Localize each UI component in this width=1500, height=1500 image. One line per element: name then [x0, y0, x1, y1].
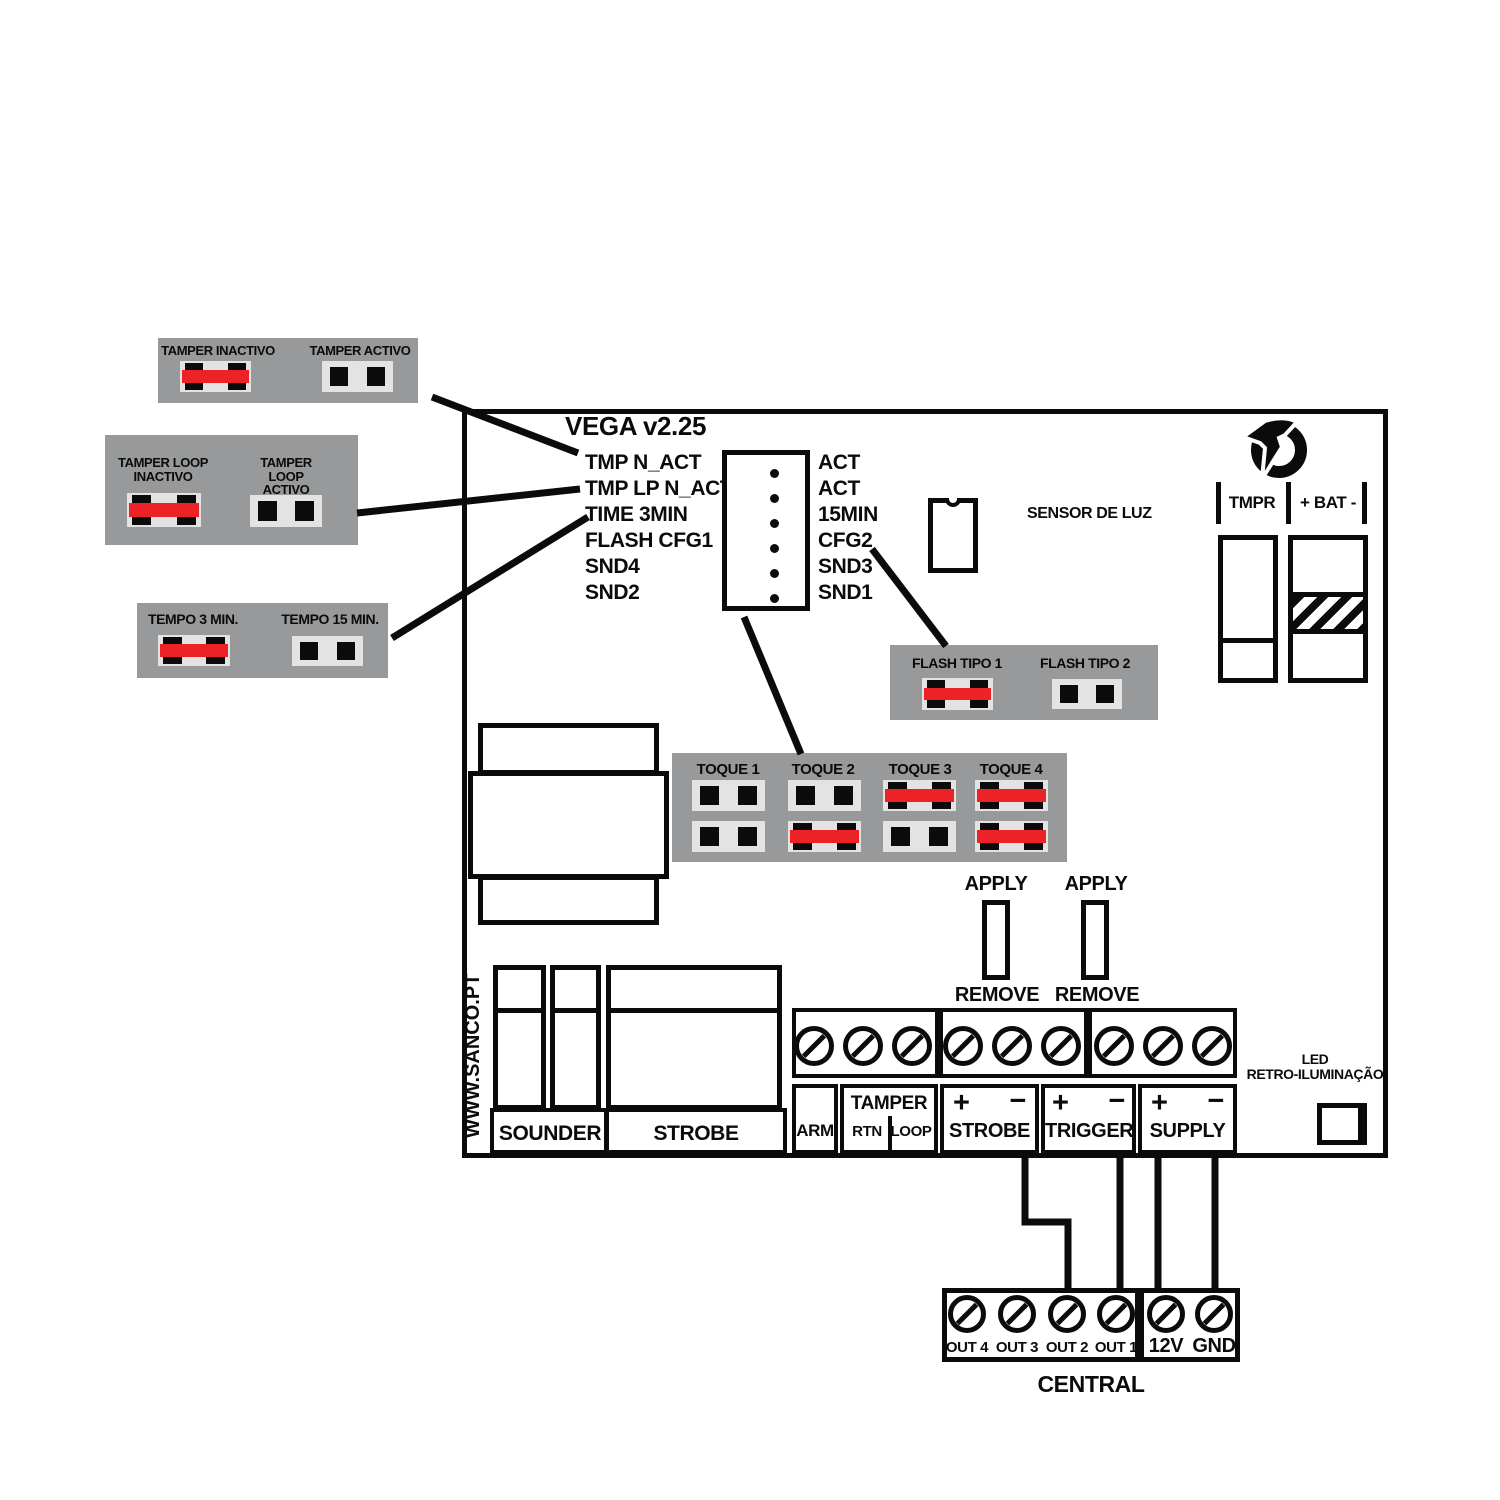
jumper-pin — [300, 642, 318, 661]
supply-minus: − — [1207, 1086, 1224, 1116]
wire-strobe-minus-out2 — [1025, 1156, 1068, 1292]
light-sensor — [928, 498, 978, 573]
tmpr-connector — [1218, 535, 1278, 683]
tamper-loop-inactive-label: TAMPER LOOP INACTIVO — [118, 456, 208, 483]
transformer-core — [468, 771, 669, 879]
jumper-cap — [924, 688, 991, 701]
terminal-label-arm: ARM — [792, 1084, 838, 1154]
jumper-pin — [796, 786, 815, 805]
cap-divider — [611, 1008, 777, 1013]
apply-label-strobe: APPLY — [965, 874, 1028, 895]
transformer-bottom — [478, 875, 659, 925]
jumper-pin — [700, 786, 719, 805]
brand-logo — [1235, 412, 1317, 482]
out1-label: OUT 1 — [1095, 1340, 1137, 1356]
trigger-plus: + — [1052, 1088, 1069, 1118]
cap-divider — [555, 1008, 596, 1013]
tempo-15min-label: TEMPO 15 MIN. — [281, 612, 378, 627]
callout-tempo: TEMPO 3 MIN. TEMPO 15 MIN. — [137, 603, 388, 678]
screw-out4 — [948, 1295, 986, 1333]
hdr-left-label-2: TIME 3MIN — [585, 504, 688, 526]
led-component — [1317, 1103, 1367, 1145]
out4-label: OUT 4 — [946, 1340, 988, 1356]
hdr-right-label-1: ACT — [818, 478, 860, 500]
sounder-label: SOUNDER — [499, 1123, 601, 1145]
tamper-active-label: TAMPER ACTIVO — [310, 344, 411, 358]
gnd-label: GND — [1192, 1336, 1235, 1357]
screw-arm — [794, 1026, 834, 1066]
screw-trigger-plus — [1041, 1026, 1081, 1066]
jumper-toque1-row2 — [692, 821, 765, 852]
bat-hatch-band — [1293, 592, 1363, 634]
website-label: WWW.SANCO.PT — [463, 962, 484, 1138]
trigger-terminal-label: TRIGGER — [1045, 1121, 1132, 1142]
cap-divider — [498, 1008, 541, 1013]
jumper-toque2-row2 — [788, 821, 861, 852]
divider-bar — [1216, 482, 1221, 524]
toque1-label: TOQUE 1 — [697, 762, 760, 778]
terminal-label-strobe: + − STROBE — [940, 1084, 1039, 1154]
bat-label: + BAT - — [1300, 494, 1356, 512]
pin-dot — [770, 594, 779, 603]
tmpr-label: TMPR — [1229, 494, 1276, 512]
sounder-cap-2 — [550, 965, 601, 1110]
jumper-pin — [1096, 685, 1114, 704]
screw-tamper-rtn — [843, 1026, 883, 1066]
led-label: LED RETRO-ILUMINAÇÃO — [1247, 1052, 1384, 1081]
screw-strobe-plus — [943, 1026, 983, 1066]
sensor-notch — [945, 498, 961, 507]
jumper-flash-tipo2 — [1052, 679, 1122, 709]
jumper-pin — [295, 501, 314, 521]
callout-flash: FLASH TIPO 1 FLASH TIPO 2 — [890, 645, 1158, 720]
jumper-tamper-loop-inactive — [127, 493, 201, 527]
strobe-block — [606, 965, 782, 1110]
jumper-cap — [977, 789, 1046, 801]
hdr-left-label-1: TMP LP N_ACT — [585, 478, 732, 500]
jumper-tempo-3min — [158, 635, 230, 666]
callout-tamper: TAMPER INACTIVO TAMPER ACTIVO — [158, 338, 418, 403]
jumper-flash-tipo1 — [922, 678, 993, 710]
jumper-toque1-row1 — [692, 780, 765, 811]
12v-label: 12V — [1149, 1336, 1183, 1357]
central-caption: CENTRAL — [1037, 1372, 1144, 1396]
jumper-tamper-active — [322, 361, 393, 392]
toque2-label: TOQUE 2 — [792, 762, 855, 778]
jumper-cap — [790, 830, 859, 842]
screw-12v — [1147, 1295, 1185, 1333]
jumper-toque3-row2 — [883, 821, 956, 852]
pin-dot — [770, 494, 779, 503]
sounder-cap-1 — [493, 965, 546, 1110]
light-sensor-label: SENSOR DE LUZ — [1027, 506, 1152, 523]
apply-label-trigger: APPLY — [1065, 874, 1128, 895]
hdr-left-label-5: SND2 — [585, 582, 639, 604]
output-label-band: SOUNDER STROBE — [490, 1108, 787, 1154]
remove-label-strobe: REMOVE — [955, 985, 1039, 1006]
bat-connector — [1288, 535, 1368, 683]
hdr-right-label-2: 15MIN — [818, 504, 878, 526]
jumper-cap — [885, 789, 954, 801]
screw-out1 — [1097, 1295, 1135, 1333]
callout-tamper-loop: TAMPER LOOP INACTIVO TAMPER LOOP ACTIVO — [105, 435, 358, 545]
supply-terminal-label: SUPPLY — [1142, 1121, 1233, 1142]
out2-label: OUT 2 — [1046, 1340, 1088, 1356]
hdr-left-label-3: FLASH CFG1 — [585, 530, 713, 552]
jumper-pin — [258, 501, 277, 521]
hdr-left-label-0: TMP N_ACT — [585, 452, 701, 474]
strobe-plus: + — [953, 1088, 970, 1118]
divider-bar — [1362, 482, 1367, 524]
tamper-title: TAMPER — [844, 1094, 934, 1114]
flash-tipo2-label: FLASH TIPO 2 — [1040, 656, 1130, 671]
jumper-pin — [929, 827, 948, 846]
pin-dot — [770, 569, 779, 578]
terminal-label-supply: + − SUPPLY — [1138, 1084, 1237, 1154]
tamper-inactive-label: TAMPER INACTIVO — [161, 344, 275, 358]
jumper-cap — [129, 503, 199, 517]
screw-supply-plus — [1143, 1026, 1183, 1066]
remove-label-trigger: REMOVE — [1055, 985, 1139, 1006]
jumper-pin — [834, 786, 853, 805]
hdr-right-label-0: ACT — [818, 452, 860, 474]
jumper-pin — [330, 367, 348, 386]
jumper-toque2-row1 — [788, 780, 861, 811]
screw-tamper-loop — [892, 1026, 932, 1066]
band-divider — [604, 1112, 609, 1150]
jumper-pin — [367, 367, 385, 386]
callout-toque: TOQUE 1 TOQUE 2 TOQUE 3 TOQUE 4 — [672, 753, 1067, 862]
divider-bar — [1286, 482, 1291, 524]
loop-label: LOOP — [888, 1124, 934, 1140]
screw-supply-minus — [1192, 1026, 1232, 1066]
jumper-toque4-row1 — [975, 780, 1048, 811]
jumper-pin — [738, 786, 757, 805]
jumper-toque3-row1 — [883, 780, 956, 811]
jumper-tamper-inactive — [180, 361, 251, 392]
jumper-toque4-row2 — [975, 821, 1048, 852]
jumper-tamper-loop-active — [250, 495, 322, 527]
pin-dot — [770, 544, 779, 553]
tempo-3min-label: TEMPO 3 MIN. — [148, 612, 238, 627]
hdr-right-label-4: SND3 — [818, 556, 872, 578]
jumper-cap — [182, 370, 249, 382]
terminal-label-tamper: TAMPER RTN LOOP — [840, 1084, 938, 1154]
hdr-right-label-3: CFG2 — [818, 530, 872, 552]
jumper-cap — [160, 644, 228, 656]
toque3-label: TOQUE 3 — [889, 762, 952, 778]
jumper-header-box — [722, 450, 810, 611]
out3-label: OUT 3 — [996, 1340, 1038, 1356]
wiring-diagram: TAMPER INACTIVO TAMPER ACTIVO TAMPER LOO… — [0, 0, 1500, 1500]
toque4-label: TOQUE 4 — [980, 762, 1043, 778]
supply-plus: + — [1151, 1088, 1168, 1118]
jumper-pin — [700, 827, 719, 846]
rtn-loop-divider — [888, 1116, 892, 1150]
screw-trigger-minus — [1094, 1026, 1134, 1066]
jumper-pin — [1060, 685, 1078, 704]
pin-dot — [770, 519, 779, 528]
arm-label: ARM — [796, 1122, 834, 1140]
tamper-loop-active-label: TAMPER LOOP ACTIVO — [250, 456, 322, 497]
screw-out3 — [998, 1295, 1036, 1333]
terminal-label-trigger: + − TRIGGER — [1041, 1084, 1136, 1154]
transformer-top — [478, 723, 659, 775]
strobe-enable-jumper — [982, 900, 1010, 980]
strobe-terminal-label: STROBE — [944, 1121, 1035, 1142]
jumper-pin — [891, 827, 910, 846]
connector-divider — [1223, 638, 1273, 643]
jumper-cap — [977, 830, 1046, 842]
pin-dot — [770, 469, 779, 478]
screw-strobe-minus — [992, 1026, 1032, 1066]
screw-gnd — [1195, 1295, 1233, 1333]
hdr-right-label-5: SND1 — [818, 582, 872, 604]
board-title: VEGA v2.25 — [565, 413, 706, 440]
trigger-enable-jumper — [1081, 900, 1109, 980]
strobe-minus: − — [1009, 1086, 1026, 1116]
jumper-tempo-15min — [292, 636, 363, 666]
jumper-pin — [738, 827, 757, 846]
hdr-left-label-4: SND4 — [585, 556, 639, 578]
flash-tipo1-label: FLASH TIPO 1 — [912, 656, 1002, 671]
screw-out2 — [1048, 1295, 1086, 1333]
jumper-pin — [337, 642, 355, 661]
rtn-label: RTN — [844, 1124, 890, 1140]
strobe-output-label: STROBE — [653, 1123, 738, 1145]
trigger-minus: − — [1108, 1086, 1125, 1116]
